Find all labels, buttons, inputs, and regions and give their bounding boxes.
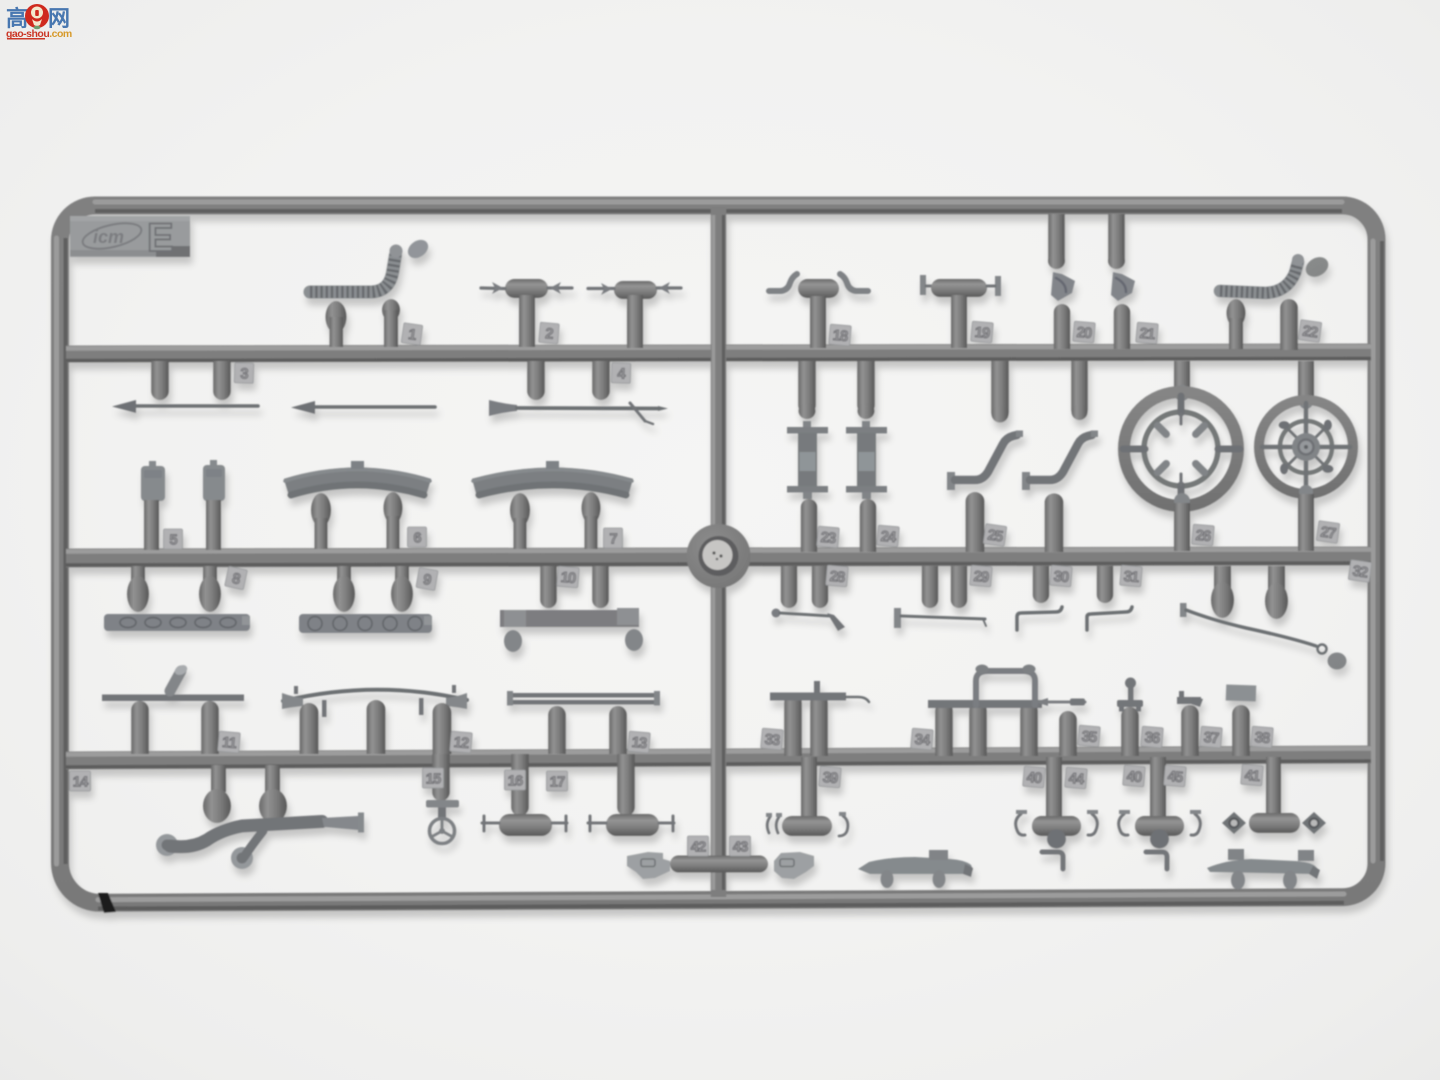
svg-text:23: 23 [820, 529, 837, 547]
svg-text:32: 32 [1351, 563, 1369, 582]
svg-text:27: 27 [1319, 524, 1337, 543]
svg-text:12: 12 [453, 734, 470, 752]
svg-text:3: 3 [240, 365, 249, 382]
svg-text:41: 41 [1244, 767, 1261, 785]
svg-text:10: 10 [560, 569, 577, 587]
svg-text:icm: icm [93, 227, 124, 247]
svg-text:36: 36 [1144, 729, 1161, 747]
svg-text:E: E [147, 216, 174, 260]
svg-text:28: 28 [829, 568, 846, 586]
svg-text:18: 18 [832, 327, 849, 345]
svg-text:19: 19 [974, 324, 991, 342]
svg-text:37: 37 [1203, 729, 1220, 747]
svg-text:15: 15 [426, 771, 441, 788]
svg-text:35: 35 [1081, 728, 1098, 746]
svg-text:43: 43 [733, 839, 748, 856]
svg-text:6: 6 [413, 530, 421, 547]
svg-text:39: 39 [822, 769, 839, 787]
svg-text:16: 16 [508, 773, 523, 790]
svg-text:26: 26 [1195, 527, 1212, 545]
svg-text:7: 7 [609, 531, 617, 548]
svg-text:13: 13 [631, 734, 648, 752]
svg-text:45: 45 [1167, 768, 1184, 786]
svg-text:11: 11 [221, 734, 237, 752]
svg-text:14: 14 [73, 774, 89, 791]
svg-text:40: 40 [1026, 769, 1043, 787]
svg-text:20: 20 [1076, 324, 1093, 342]
svg-text:25: 25 [986, 527, 1004, 546]
svg-text:29: 29 [973, 568, 990, 586]
svg-text:17: 17 [550, 774, 565, 791]
svg-text:38: 38 [1254, 729, 1271, 747]
svg-text:40: 40 [1126, 768, 1143, 786]
svg-text:42: 42 [691, 839, 706, 856]
svg-text:33: 33 [764, 731, 781, 749]
svg-text:31: 31 [1123, 568, 1140, 586]
svg-text:5: 5 [169, 532, 177, 549]
svg-text:30: 30 [1053, 568, 1070, 586]
svg-text:22: 22 [1301, 323, 1319, 342]
svg-text:21: 21 [1139, 325, 1156, 343]
